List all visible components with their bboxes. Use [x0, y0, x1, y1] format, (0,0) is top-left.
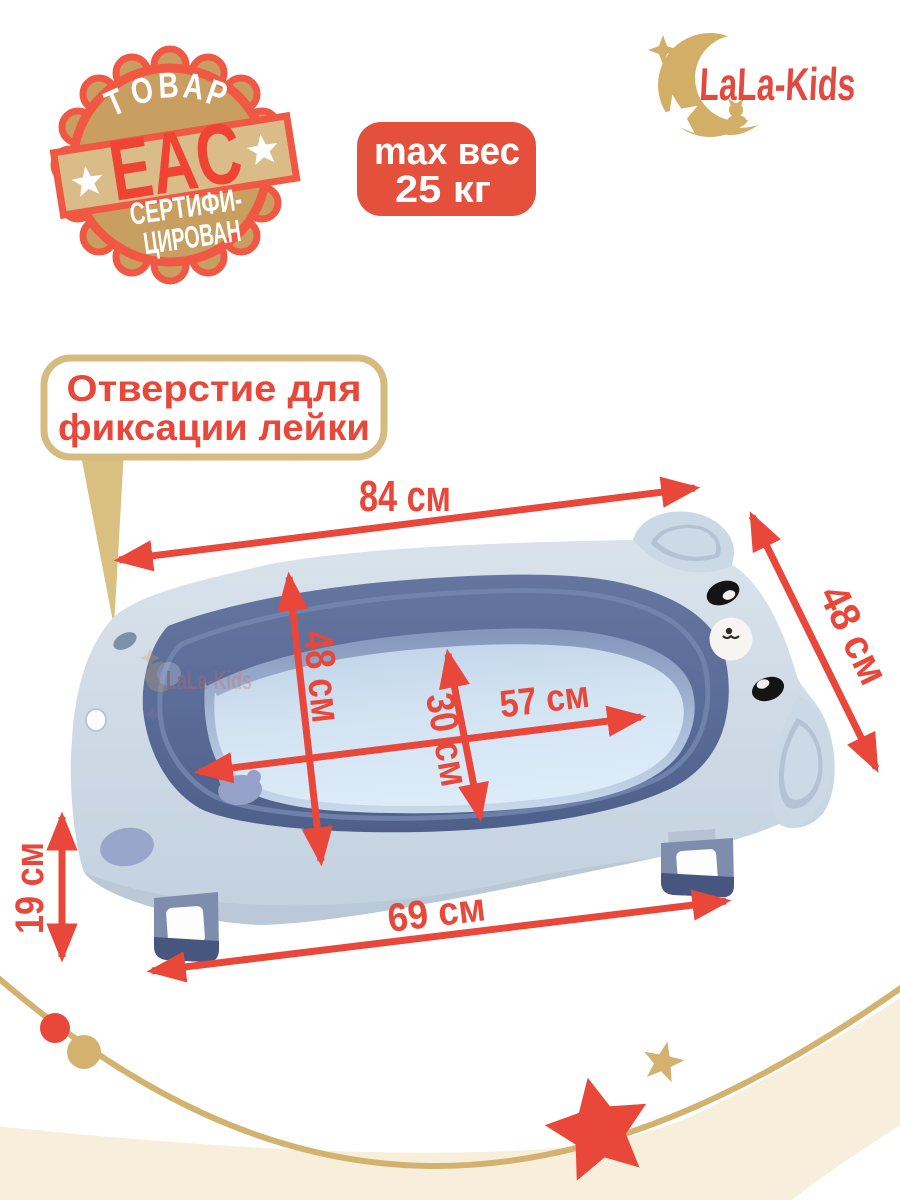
svg-text:19 см: 19 см — [8, 842, 52, 934]
svg-text:LaLa-Kids: LaLa-Kids — [166, 665, 252, 695]
svg-text:фиксации лейки: фиксации лейки — [58, 407, 370, 448]
svg-text:48 см: 48 см — [810, 578, 898, 692]
svg-text:25 кг: 25 кг — [395, 169, 491, 211]
svg-text:84 см: 84 см — [359, 472, 451, 521]
svg-text:48 см: 48 см — [294, 628, 350, 724]
svg-text:В: В — [157, 65, 179, 106]
svg-text:max вес: max вес — [374, 131, 520, 173]
svg-text:LaLa-Kids: LaLa-Kids — [698, 58, 857, 110]
svg-text:Отверстие для: Отверстие для — [67, 368, 362, 409]
